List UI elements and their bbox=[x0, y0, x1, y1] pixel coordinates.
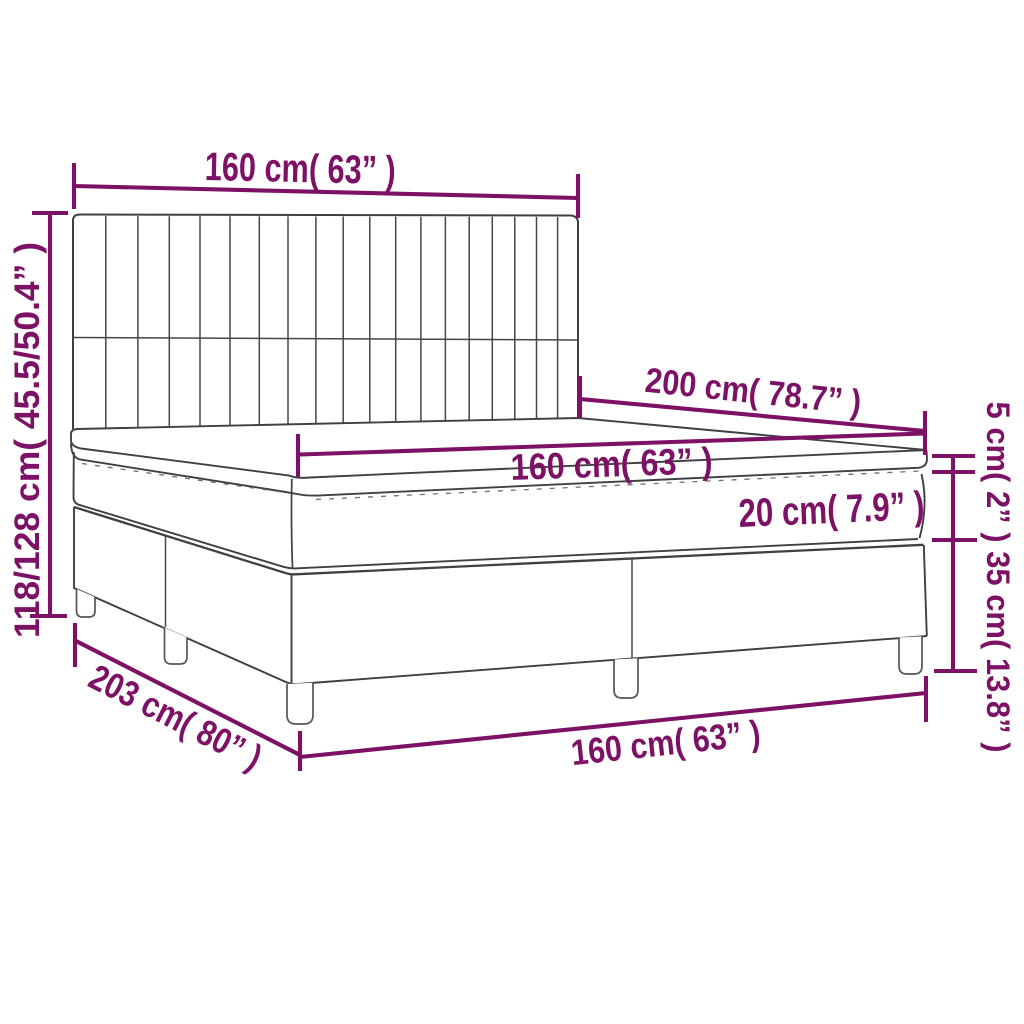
svg-text:160 cm( 63” ): 160 cm( 63” ) bbox=[569, 712, 762, 773]
svg-text:118/128 cm( 45.5/50.4” ): 118/128 cm( 45.5/50.4” ) bbox=[8, 242, 47, 638]
svg-text:203 cm( 80” ): 203 cm( 80” ) bbox=[83, 656, 269, 778]
svg-text:20 cm( 7.9” ): 20 cm( 7.9” ) bbox=[738, 484, 926, 536]
svg-text:160 cm( 63” ): 160 cm( 63” ) bbox=[204, 145, 396, 193]
svg-text:160 cm( 63” ): 160 cm( 63” ) bbox=[510, 440, 713, 488]
svg-text:5 cm( 2” ) 35 cm( 13.8” ): 5 cm( 2” ) 35 cm( 13.8” ) bbox=[980, 402, 1016, 753]
